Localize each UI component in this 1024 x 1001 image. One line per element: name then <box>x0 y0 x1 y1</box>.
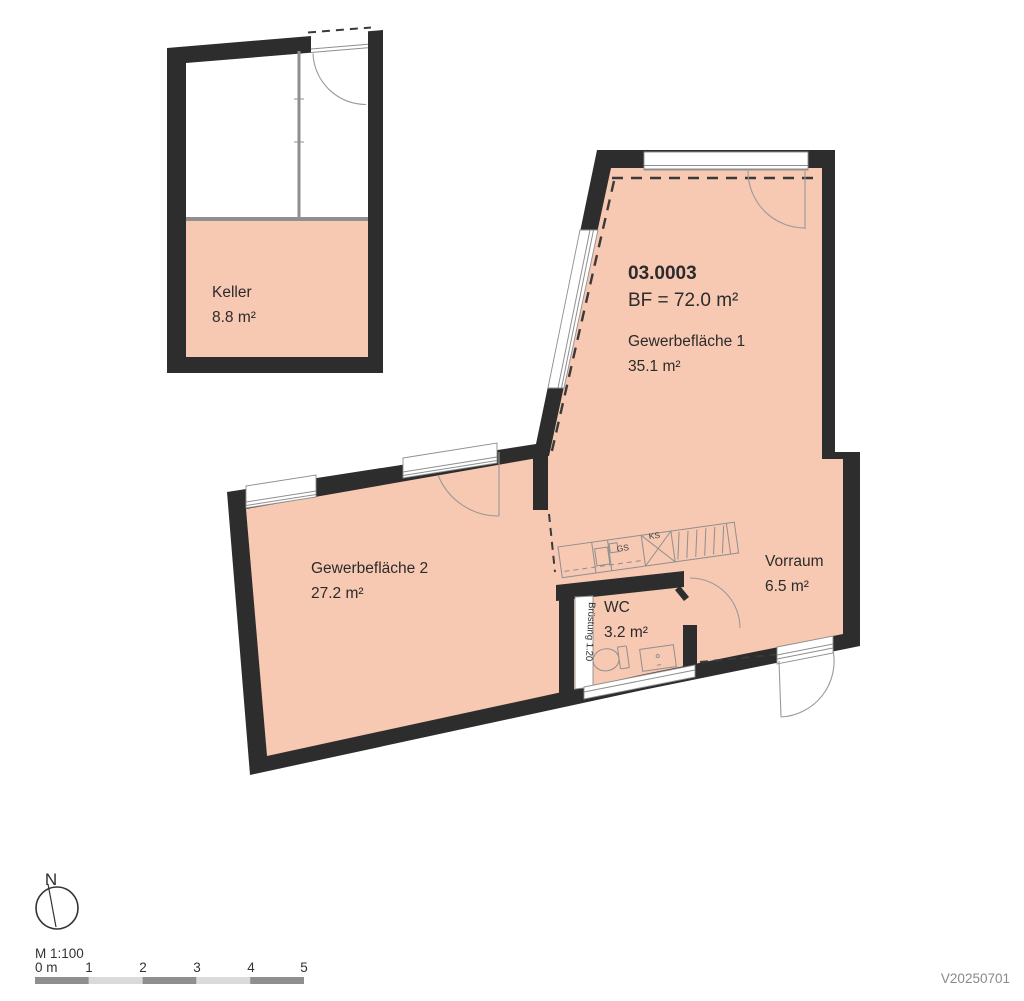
floorplan-page: Keller 8.8 m² Brüs <box>0 0 1024 1001</box>
scale-bar-segments <box>35 977 304 984</box>
unit-id-label: 03.0003 <box>628 263 697 284</box>
scale-segment <box>143 977 197 984</box>
scale-tick-3: 3 <box>193 960 201 975</box>
scale-segment <box>196 977 250 984</box>
gf2-corridor-wall-stub <box>533 456 548 510</box>
keller-plan: Keller 8.8 m² <box>167 28 383 374</box>
gf1-top-window <box>644 152 808 170</box>
unit-bf-label: BF = 72.0 m² <box>628 290 738 311</box>
wc-left-wall <box>559 584 574 704</box>
gf2-area-label: 27.2 m² <box>311 585 364 602</box>
scale-tick-4: 4 <box>247 960 255 975</box>
vorraum-area-label: 6.5 m² <box>765 578 809 595</box>
north-arrow: N <box>36 870 78 929</box>
kitchen-ks-label: KS <box>648 530 661 542</box>
wc-room-label: WC <box>604 599 630 616</box>
gf1-area-label: 35.1 m² <box>628 358 681 375</box>
keller-area-label: 8.8 m² <box>212 309 256 326</box>
north-label: N <box>45 870 57 889</box>
scale-tick-5: 5 <box>300 960 308 975</box>
scale-tick-2: 2 <box>139 960 147 975</box>
scale-segment <box>89 977 143 984</box>
scale-segment <box>250 977 304 984</box>
wc-area-label: 3.2 m² <box>604 624 648 641</box>
wc-right-wall-stub <box>683 625 697 667</box>
gf2-room-label: Gewerbefläche 2 <box>311 560 428 577</box>
scale-tick-1: 1 <box>85 960 93 975</box>
kitchen-gs-label: GS <box>616 542 630 554</box>
floorplan-drawing: Keller 8.8 m² Brüs <box>0 0 1024 1001</box>
north-circle <box>36 887 78 929</box>
scale-label: M 1:100 <box>35 946 84 961</box>
north-needle <box>48 884 56 927</box>
version-stamp: V20250701 <box>941 971 1010 986</box>
keller-room-label: Keller <box>212 284 252 301</box>
scale-tick-0: 0 m <box>35 960 58 975</box>
scale-segment <box>35 977 89 984</box>
gf1-room-label: Gewerbefläche 1 <box>628 333 745 350</box>
entry-door-leaf <box>779 661 781 717</box>
vorraum-room-label: Vorraum <box>765 553 824 570</box>
scale-bar: M 1:100 0 m 1 2 3 4 5 <box>35 946 308 984</box>
